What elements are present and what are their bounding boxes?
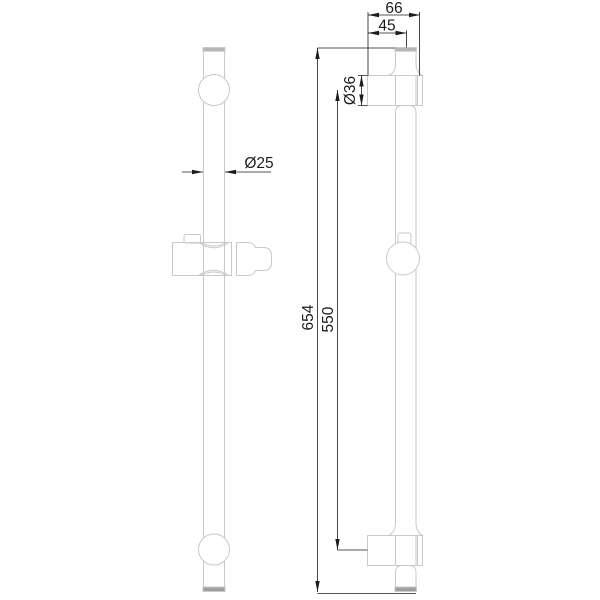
side-view-drawing [368,48,424,592]
dim-mount-spacing-lines [338,90,368,550]
dim-overall-length: 654 [300,48,416,594]
dim-mount-spacing-label: 550 [320,306,337,332]
dim-bar-diameter-label: Ø25 [244,155,273,172]
dim-arrow-right [192,170,203,174]
dim-arrow-left [225,170,236,174]
side-top-bracket [368,76,418,106]
front-bar-outline [204,51,225,587]
dim-arrow-down [315,581,319,592]
dim-mount-spacing: 550 [320,90,368,550]
side-bar-top-cap [395,48,417,52]
dim-arrow-left [368,13,379,17]
front-bottom-mount [199,534,230,565]
dim-arrow-right [396,31,407,35]
side-bottom-wall-plate [418,536,423,566]
dim-arrow-up [359,76,363,87]
dim-mount-diameter-label: Ø36 [342,76,359,105]
front-bar-bottom-cap [203,587,225,592]
front-bar-top-cap [203,48,225,52]
side-bar-bottom-cap [395,587,417,592]
dim-arrow-down [359,95,363,106]
dim-arrow-up [335,90,339,101]
slider-release-tab [184,235,201,244]
front-top-mount [199,75,230,106]
dim-depth-overall-label: 66 [385,0,402,17]
dim-arrow-right [409,13,420,17]
side-bottom-bracket [368,536,418,566]
dim-mount-diameter: Ø36 [342,76,368,106]
dim-overall-length-label: 654 [300,304,317,330]
dim-arrow-left [368,31,379,35]
side-slider-knob [387,242,420,275]
side-bar-right-edge [409,51,423,587]
dim-arrow-up [315,48,319,59]
side-bar-left-edge [389,51,403,587]
dim-depth-overall: 66 [368,0,420,76]
dim-bar-diameter: Ø25 [182,155,274,174]
side-top-wall-plate [418,76,423,106]
dim-mount-diameter-lines [358,76,368,106]
dim-depth-to-center-label: 45 [378,18,395,35]
slider-body [173,243,232,276]
handset-holder [237,243,272,276]
dim-depth-to-center: 45 [368,18,407,48]
slide-bar-technical-drawing: 66 45 Ø36 Ø25 654 [0,0,600,600]
dim-arrow-down [335,539,339,550]
technical-drawing-canvas: 66 45 Ø36 Ø25 654 [0,0,600,600]
front-slider [173,235,272,276]
front-view-drawing [173,48,272,592]
